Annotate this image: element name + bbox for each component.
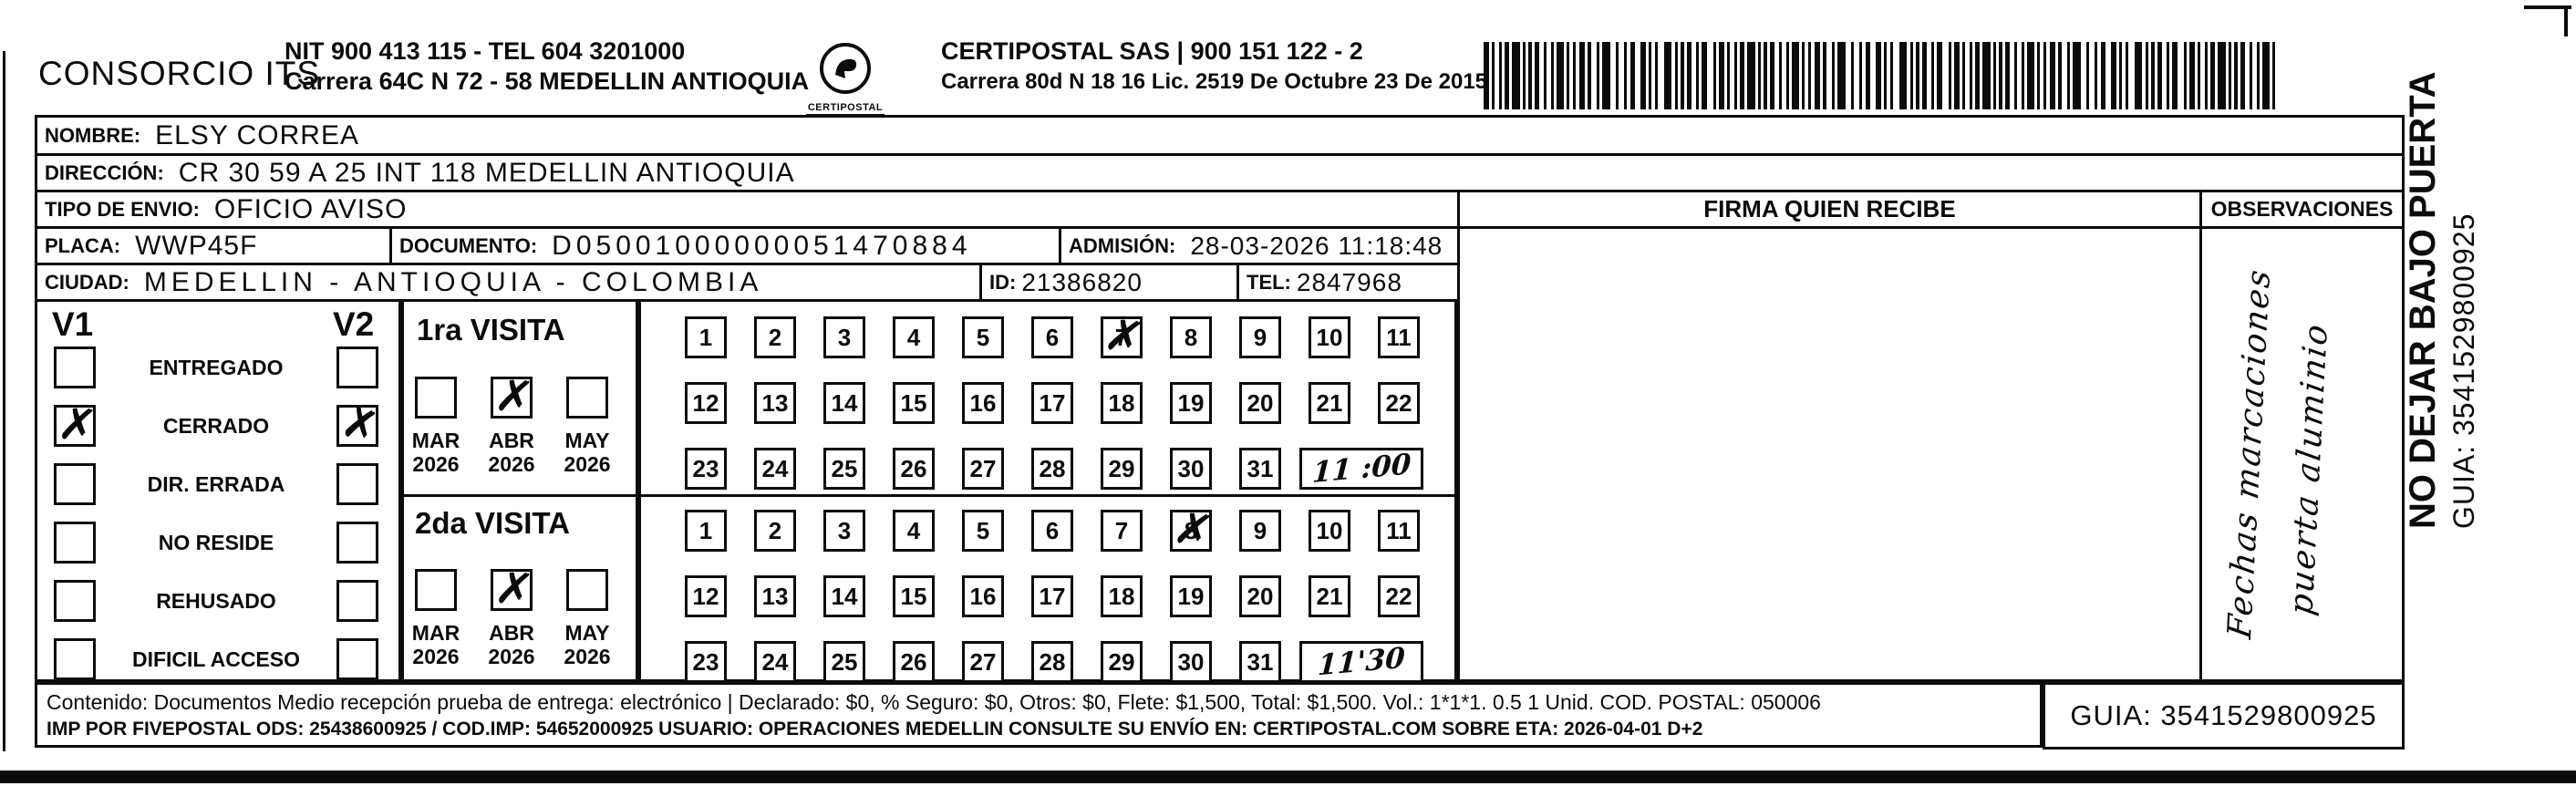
barcode-bar	[2095, 42, 2097, 109]
barcode-bar	[2205, 42, 2208, 109]
status-checkbox-v1-entregado	[54, 346, 96, 388]
day-cell-20: 20	[1239, 382, 1281, 424]
day-number: 19	[1178, 583, 1205, 611]
barcode-bar	[1962, 42, 1965, 109]
barcode-bar	[1815, 42, 1820, 109]
barcode-bar	[1993, 42, 1996, 109]
day-number: 13	[762, 389, 789, 418]
month-year: 2026	[483, 453, 540, 476]
day-number: 3	[838, 324, 851, 352]
admision-cell: ADMISIÓN: 28-03-2026 11:18:48	[1059, 226, 1460, 265]
status-label: DIFICIL ACCESO	[96, 638, 336, 680]
day-cell-3: 3	[823, 316, 865, 358]
status-checkbox-v1-dificil-acceso	[54, 638, 96, 680]
day-cell-20: 20	[1239, 575, 1281, 617]
side-annotation: NO DEJAR BAJO PUERTA GUIA: 3541529800925	[2403, 128, 2521, 529]
barcode-bar	[1770, 42, 1774, 109]
status-label: REHUSADO	[96, 580, 336, 622]
barcode-bar	[2262, 42, 2270, 109]
day-cell-14: 14	[823, 382, 865, 424]
day-number: 25	[832, 648, 858, 677]
status-checkbox-v2-entregado	[336, 346, 378, 388]
tel-cell: TEL: 2847968	[1236, 263, 1460, 302]
day-number: 19	[1178, 389, 1205, 418]
day-number: 14	[832, 583, 858, 611]
day-number: 20	[1247, 389, 1274, 418]
month-label: ABR	[483, 429, 540, 452]
barcode-bar	[1779, 42, 1782, 109]
barcode-bar	[2073, 42, 2081, 109]
barcode-bar	[1602, 42, 1610, 109]
check-mark: ✗	[486, 367, 543, 427]
barcode-bar	[2172, 42, 2178, 109]
barcode-bar	[1505, 42, 1509, 109]
day-number: 2	[769, 324, 781, 352]
day-cell-1: 1	[685, 510, 727, 552]
barcode-bar	[2101, 42, 2105, 109]
visit-time-box: 11 :00	[1299, 448, 1423, 490]
barcode-bar	[2058, 42, 2062, 109]
barcode-bar	[1851, 42, 1854, 109]
day-cell-29: 29	[1101, 448, 1143, 490]
day-cell-10: 10	[1309, 316, 1350, 358]
contenido-line: Contenido: Documentos Medio recepción pr…	[47, 690, 1821, 715]
v2-column-label: V2	[333, 305, 374, 344]
day-cell-22: 22	[1378, 382, 1420, 424]
visit-time-box: 11'30	[1299, 641, 1423, 683]
documento-cell: DOCUMENTO: D05001000000051470884	[389, 226, 1061, 265]
barcode-bar	[1727, 42, 1730, 109]
operator-name-line: CERTIPOSTAL SAS | 900 151 122 - 2	[941, 36, 1487, 67]
day-cell-11: 11	[1378, 510, 1420, 552]
barcode-bar	[1792, 42, 1799, 109]
barcode-bar	[1808, 42, 1811, 109]
tracking-barcode	[1484, 42, 2284, 109]
day-cell-24: 24	[754, 448, 796, 490]
day-number: 2	[769, 517, 781, 545]
barcode-bar	[1832, 42, 1835, 109]
barcode-bar	[1713, 42, 1716, 109]
barcode-bar	[2229, 42, 2231, 109]
day-cell-6: 6	[1031, 510, 1073, 552]
check-mark: ✗	[333, 388, 388, 462]
guia-box: GUIA: 3541529800925	[2043, 682, 2405, 750]
day-cell-8: 8✗	[1170, 510, 1212, 552]
nombre-value: ELSY CORREA	[155, 120, 359, 151]
day-cell-16: 16	[962, 382, 1004, 424]
barcode-bar	[2027, 42, 2034, 109]
barcode-bar	[2157, 42, 2162, 109]
barcode-bar	[2240, 42, 2245, 109]
month-year: 2026	[483, 646, 540, 668]
day-cell-16: 16	[962, 575, 1004, 617]
admision-label: ADMISIÓN:	[1069, 234, 1175, 258]
barcode-bar	[2272, 42, 2275, 109]
barcode-bar	[1655, 42, 1658, 109]
day-cell-23: 23	[685, 641, 727, 683]
day-cell-21: 21	[1309, 575, 1350, 617]
month-label: MAY	[559, 429, 616, 452]
barcode-bar	[2146, 42, 2148, 109]
barcode-bar	[1523, 42, 1526, 109]
barcode-bar	[2119, 42, 2122, 109]
placa-cell: PLACA: WWP45F	[35, 226, 392, 265]
observaciones-header-label: OBSERVACIONES	[2211, 197, 2394, 222]
barcode-bar	[1910, 42, 1913, 109]
barcode-bar	[1740, 42, 1744, 109]
day-cell-30: 30	[1170, 448, 1212, 490]
barcode-bar	[1687, 42, 1691, 109]
day-cell-19: 19	[1170, 382, 1212, 424]
guia-number: GUIA: 3541529800925	[2070, 699, 2376, 732]
day-number: 5	[977, 517, 989, 545]
handwritten-time: 11'30	[1317, 642, 1405, 683]
day-number: 12	[693, 389, 719, 418]
barcode-bar	[1535, 42, 1539, 109]
day-cell-12: 12	[685, 382, 727, 424]
observaciones-header: OBSERVACIONES	[2199, 190, 2405, 229]
day-number: 9	[1254, 324, 1267, 352]
barcode-bar	[1624, 42, 1627, 109]
day-cell-17: 17	[1031, 575, 1073, 617]
barcode-bar	[1931, 42, 1934, 109]
day-cell-28: 28	[1031, 448, 1073, 490]
day-number: 31	[1247, 648, 1274, 677]
barcode-bar	[1890, 42, 1893, 109]
v1-column-label: V1	[52, 305, 93, 344]
barcode-bar	[1884, 42, 1887, 109]
barcode-bar	[1675, 42, 1678, 109]
status-label: NO RESIDE	[96, 522, 336, 564]
barcode-bar	[1597, 42, 1599, 109]
barcode-bar	[1899, 42, 1907, 109]
status-section: V1 V2 ENTREGADO✗CERRADO✗DIR. ERRADANO RE…	[35, 299, 401, 682]
operator-info: CERTIPOSTAL SAS | 900 151 122 - 2 Carrer…	[941, 36, 1487, 97]
day-cell-28: 28	[1031, 641, 1073, 683]
barcode-bar	[1664, 42, 1671, 109]
postal-waybill-scan: ’ CONSORCIO ITS NIT 900 413 115 - TEL 60…	[0, 0, 2576, 786]
ciudad-cell: CIUDAD: MEDELLIN - ANTIOQUIA - COLOMBIA	[35, 263, 982, 302]
barcode-bar	[2257, 42, 2260, 109]
barcode-bar	[1922, 42, 1927, 109]
barcode-bar	[1970, 42, 1972, 109]
day-cell-27: 27	[962, 641, 1004, 683]
barcode-bar	[1982, 42, 1991, 109]
visit-divider-line	[401, 494, 1457, 497]
day-number: 11	[1386, 517, 1412, 545]
status-checkbox-v2-rehusado	[336, 580, 378, 622]
day-number: 20	[1247, 583, 1274, 611]
day-number: 23	[693, 648, 719, 677]
day-cell-2: 2	[754, 510, 796, 552]
day-number: 7	[1115, 324, 1128, 352]
barcode-bar	[1823, 42, 1826, 109]
status-checkbox-v1-cerrado: ✗	[54, 405, 96, 447]
day-cell-21: 21	[1309, 382, 1350, 424]
barcode-bar	[2250, 42, 2252, 109]
status-checkbox-v2-cerrado: ✗	[336, 405, 378, 447]
day-number: 4	[907, 517, 920, 545]
id-value: 21386820	[1021, 268, 1143, 297]
barcode-bar	[2050, 42, 2055, 109]
day-cell-19: 19	[1170, 575, 1212, 617]
id-label: ID:	[989, 271, 1016, 295]
tipo-envio-label: TIPO DE ENVIO:	[45, 198, 200, 222]
ciudad-value: MEDELLIN - ANTIOQUIA - COLOMBIA	[144, 267, 762, 298]
placa-label: PLACA:	[45, 234, 120, 258]
calendar-grid: 1234567✗89101112131415161718192021222324…	[638, 299, 1457, 682]
barcode-bar	[2218, 42, 2226, 109]
day-cell-30: 30	[1170, 641, 1212, 683]
status-label: CERRADO	[96, 405, 336, 447]
month-label: MAY	[559, 622, 616, 645]
day-cell-4: 4	[893, 510, 935, 552]
day-cell-9: 9	[1239, 510, 1281, 552]
barcode-bar	[1975, 42, 1980, 109]
day-number: 24	[762, 648, 789, 677]
barcode-bar	[2037, 42, 2040, 109]
day-cell-17: 17	[1031, 382, 1073, 424]
barcode-bar	[1954, 42, 1960, 109]
day-number: 4	[907, 324, 920, 352]
barcode-bar	[1640, 42, 1646, 109]
day-number: 18	[1109, 389, 1135, 418]
day-number: 1	[699, 517, 712, 545]
day-cell-18: 18	[1101, 575, 1143, 617]
barcode-bar	[2005, 42, 2010, 109]
day-cell-23: 23	[685, 448, 727, 490]
direccion-value: CR 30 59 A 25 INT 118 MEDELLIN ANTIOQUIA	[179, 158, 795, 189]
operator-address-line: Carrera 80d N 18 16 Lic. 2519 De Octubre…	[941, 67, 1487, 97]
day-number: 10	[1317, 517, 1343, 545]
status-label: DIR. ERRADA	[96, 463, 336, 505]
logo-caption: CERTIPOSTAL	[806, 102, 885, 116]
day-cell-5: 5	[962, 510, 1004, 552]
status-checkbox-v1-dir-errada	[54, 463, 96, 505]
day-number: 18	[1109, 583, 1135, 611]
barcode-bar	[1588, 42, 1591, 109]
day-number: 21	[1317, 389, 1343, 418]
month-label: MAR	[408, 429, 464, 452]
barcode-bar	[1696, 42, 1699, 109]
barcode-bar	[2210, 42, 2215, 109]
day-cell-5: 5	[962, 316, 1004, 358]
day-cell-13: 13	[754, 382, 796, 424]
day-number: 13	[762, 583, 789, 611]
barcode-bar	[1734, 42, 1737, 109]
day-number: 31	[1247, 455, 1274, 483]
day-cell-18: 18	[1101, 382, 1143, 424]
day-number: 9	[1254, 517, 1267, 545]
day-number: 10	[1317, 324, 1343, 352]
company-info: NIT 900 413 115 - TEL 604 3201000 Carrer…	[284, 36, 809, 97]
day-cell-14: 14	[823, 575, 865, 617]
company-nit-line: NIT 900 413 115 - TEL 604 3201000	[284, 36, 809, 67]
check-mark: ✗	[486, 560, 543, 619]
day-number: 11	[1386, 324, 1412, 352]
day-number: 8	[1185, 324, 1197, 352]
barcode-bar	[1786, 42, 1789, 109]
barcode-bar	[2189, 42, 2195, 109]
barcode-bar	[1616, 42, 1619, 109]
nombre-row: NOMBRE: ELSY CORREA	[35, 115, 2405, 156]
day-number: 15	[901, 583, 927, 611]
day-number: 14	[832, 389, 858, 418]
day-number: 28	[1040, 455, 1066, 483]
barcode-bar	[1573, 42, 1576, 109]
certipostal-logo: CERTIPOSTAL	[806, 40, 885, 116]
barcode-bar	[1758, 42, 1761, 109]
tipo-envio-value: OFICIO AVISO	[214, 194, 407, 225]
day-number: 6	[1046, 517, 1059, 545]
barcode-bar	[1747, 42, 1755, 109]
day-number: 17	[1040, 389, 1066, 418]
day-cell-26: 26	[893, 448, 935, 490]
side-guia-number: GUIA: 3541529800925	[2447, 213, 2481, 529]
barcode-bar	[1937, 42, 1942, 109]
barcode-bar	[1567, 42, 1569, 109]
barcode-bar	[2014, 42, 2017, 109]
day-cell-10: 10	[1309, 510, 1350, 552]
barcode-bar	[1630, 42, 1635, 109]
barcode-bar	[2126, 42, 2128, 109]
day-number: 27	[970, 648, 997, 677]
day-number: 6	[1046, 324, 1059, 352]
day-number: 27	[970, 455, 997, 483]
day-number: 15	[901, 389, 927, 418]
status-checkbox-v1-rehusado	[54, 580, 96, 622]
day-cell-11: 11	[1378, 316, 1420, 358]
no-dejar-bajo-puerta-text: NO DEJAR BAJO PUERTA	[2403, 71, 2444, 529]
month-checkbox-may	[566, 377, 608, 419]
barcode-bar	[1544, 42, 1547, 109]
imp-line: IMP POR FIVEPOSTAL ODS: 25438600925 / CO…	[47, 719, 1702, 740]
day-number: 29	[1109, 455, 1135, 483]
barcode-bar	[2022, 42, 2024, 109]
day-number: 24	[762, 455, 789, 483]
barcode-bar	[1649, 42, 1651, 109]
status-checkbox-v2-dificil-acceso	[336, 638, 378, 680]
barcode-bar	[2111, 42, 2116, 109]
day-number: 26	[901, 455, 927, 483]
firma-signature-area	[1457, 226, 2202, 682]
month-label: ABR	[483, 622, 540, 645]
month-checkbox-abr: ✗	[491, 377, 533, 419]
status-label: ENTREGADO	[96, 346, 336, 388]
barcode-bar	[1702, 42, 1707, 109]
day-cell-6: 6	[1031, 316, 1073, 358]
barcode-bar	[1557, 42, 1564, 109]
tel-label: TEL:	[1247, 271, 1291, 295]
observaciones-handwritten-note: Fechas marcaciones puerta aluminio	[2210, 233, 2404, 660]
day-cell-22: 22	[1378, 575, 1420, 617]
month-checkbox-abr: ✗	[491, 569, 533, 611]
day-number: 25	[832, 455, 858, 483]
month-year: 2026	[408, 453, 464, 476]
barcode-bar	[1499, 42, 1502, 109]
scan-edge-line	[3, 51, 5, 751]
barcode-bar	[1719, 42, 1724, 109]
firma-header-label: FIRMA QUIEN RECIBE	[1703, 195, 1955, 223]
day-cell-4: 4	[893, 316, 935, 358]
day-cell-1: 1	[685, 316, 727, 358]
day-number: 22	[1386, 583, 1412, 611]
day-number: 23	[693, 455, 719, 483]
id-cell: ID: 21386820	[979, 263, 1239, 302]
day-number: 1	[699, 324, 712, 352]
placa-value: WWP45F	[135, 231, 257, 262]
day-number: 21	[1317, 583, 1343, 611]
visit-panels: 1ra VISITA 2da VISITA MAR2026✗ABR2026MAY…	[401, 299, 638, 682]
company-address-line: Carrera 64C N 72 - 58 MEDELLIN ANTIOQUIA	[284, 67, 809, 97]
day-number: 5	[977, 324, 989, 352]
barcode-bar	[1484, 42, 1489, 109]
day-cell-3: 3	[823, 510, 865, 552]
day-cell-9: 9	[1239, 316, 1281, 358]
ciudad-label: CIUDAD:	[45, 271, 129, 295]
contenido-row: Contenido: Documentos Medio recepción pr…	[35, 682, 2043, 748]
month-year: 2026	[408, 646, 464, 668]
day-cell-13: 13	[754, 575, 796, 617]
direccion-row: DIRECCIÓN: CR 30 59 A 25 INT 118 MEDELLI…	[35, 153, 2405, 192]
barcode-bar	[2086, 42, 2089, 109]
day-number: 7	[1115, 517, 1128, 545]
barcode-bar	[1949, 42, 1951, 109]
month-label: MAR	[408, 622, 464, 645]
day-cell-24: 24	[754, 641, 796, 683]
status-checkbox-v1-no-reside	[54, 522, 96, 564]
month-checkbox-may	[566, 569, 608, 611]
barcode-bar	[1492, 42, 1495, 109]
day-number: 16	[970, 389, 997, 418]
month-year: 2026	[559, 453, 616, 476]
day-number: 12	[693, 583, 719, 611]
day-cell-8: 8	[1170, 316, 1212, 358]
barcode-bar	[2184, 42, 2187, 109]
day-cell-7: 7	[1101, 510, 1143, 552]
admision-value: 28-03-2026 11:18:48	[1190, 232, 1443, 261]
status-checkbox-v2-dir-errada	[336, 463, 378, 505]
day-cell-12: 12	[685, 575, 727, 617]
day-cell-29: 29	[1101, 641, 1143, 683]
barcode-bar	[1802, 42, 1805, 109]
month-checkbox-mar	[415, 377, 457, 419]
month-checkbox-mar	[415, 569, 457, 611]
barcode-bar	[1551, 42, 1554, 109]
documento-label: DOCUMENTO:	[399, 234, 537, 258]
day-cell-31: 31	[1239, 641, 1281, 683]
day-cell-25: 25	[823, 641, 865, 683]
barcode-bar	[1512, 42, 1520, 109]
day-number: 22	[1386, 389, 1412, 418]
barcode-bar	[1916, 42, 1919, 109]
visit-2-title: 2da VISITA	[415, 506, 570, 541]
nombre-label: NOMBRE:	[45, 124, 140, 148]
barcode-bar	[2198, 42, 2200, 109]
day-number: 17	[1040, 583, 1066, 611]
company-name: CONSORCIO ITS	[38, 55, 320, 93]
barcode-bar	[1681, 42, 1684, 109]
barcode-bar	[1876, 42, 1881, 109]
certipostal-logo-icon	[817, 85, 874, 100]
day-number: 28	[1040, 648, 1066, 677]
status-checkbox-v2-no-reside	[336, 522, 378, 564]
barcode-bar	[1764, 42, 1767, 109]
day-number: 26	[901, 648, 927, 677]
day-cell-31: 31	[1239, 448, 1281, 490]
day-cell-7: 7✗	[1101, 316, 1143, 358]
barcode-bar	[1579, 42, 1585, 109]
